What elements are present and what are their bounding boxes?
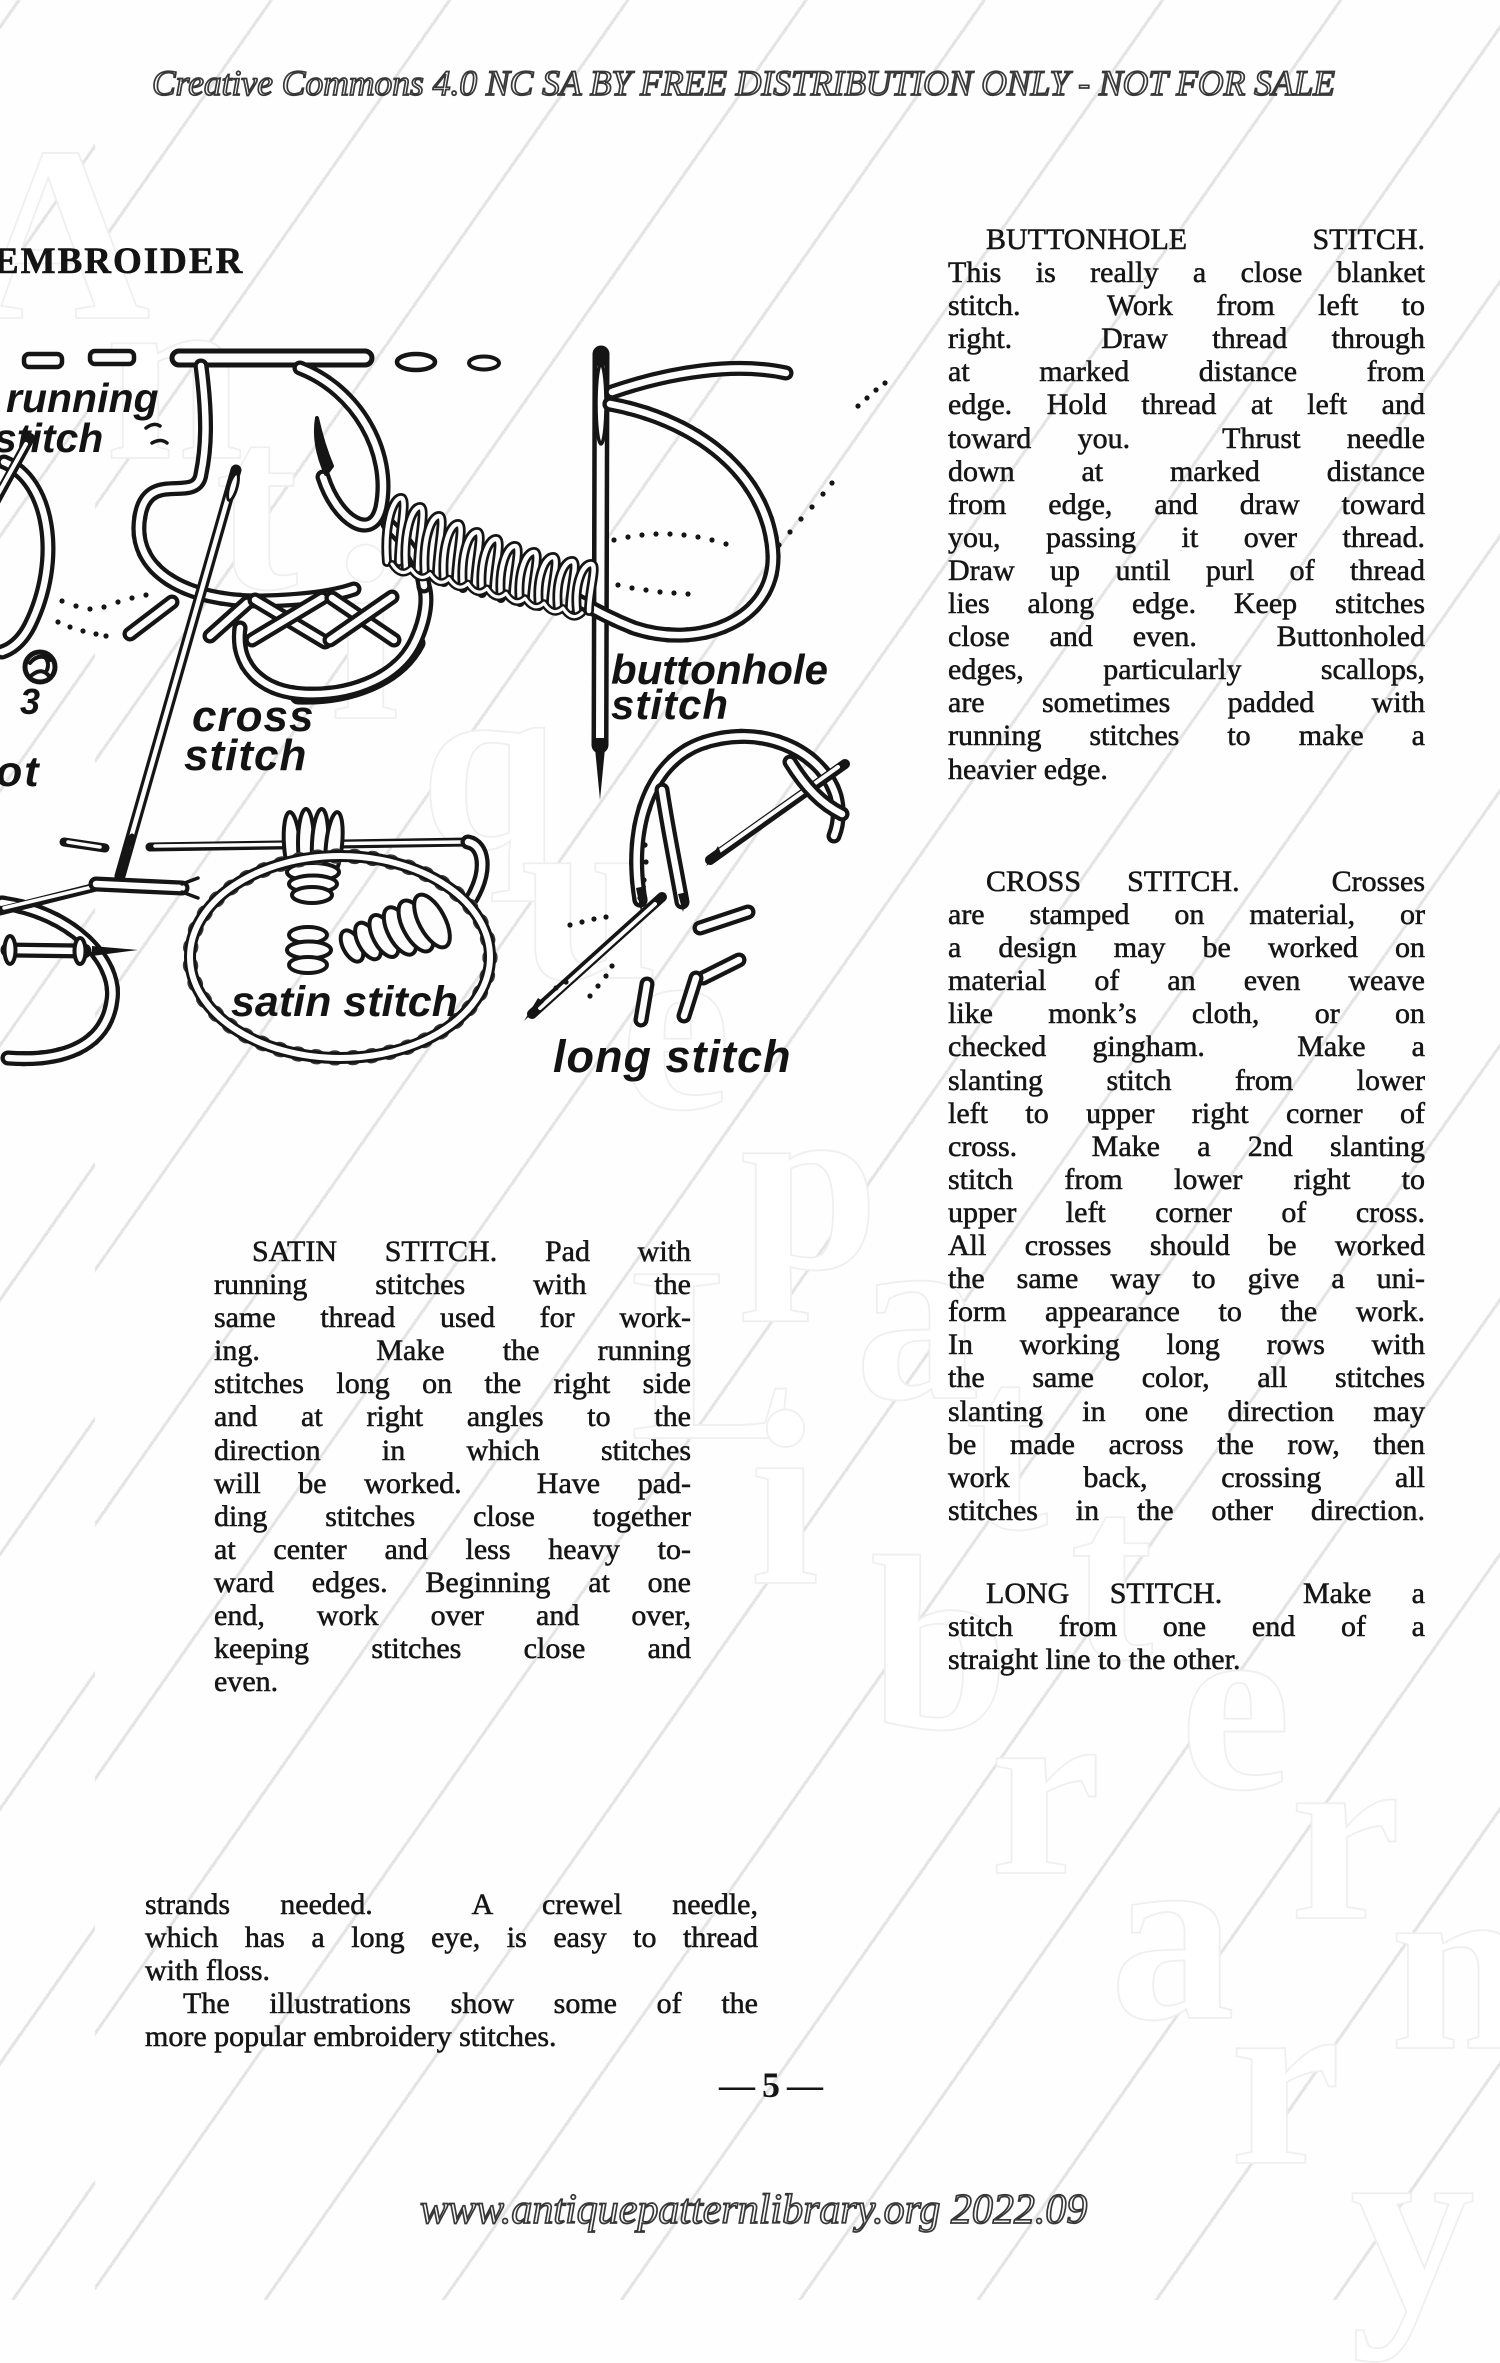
svg-text:stitch: stitch xyxy=(184,731,307,780)
svg-text:ot: ot xyxy=(0,748,41,796)
svg-text:long stitch: long stitch xyxy=(553,1031,791,1082)
svg-text:satin stitch: satin stitch xyxy=(231,978,458,1026)
svg-text:stitch: stitch xyxy=(611,681,729,728)
svg-text:stitch: stitch xyxy=(0,415,103,461)
svg-text:3: 3 xyxy=(20,681,40,722)
